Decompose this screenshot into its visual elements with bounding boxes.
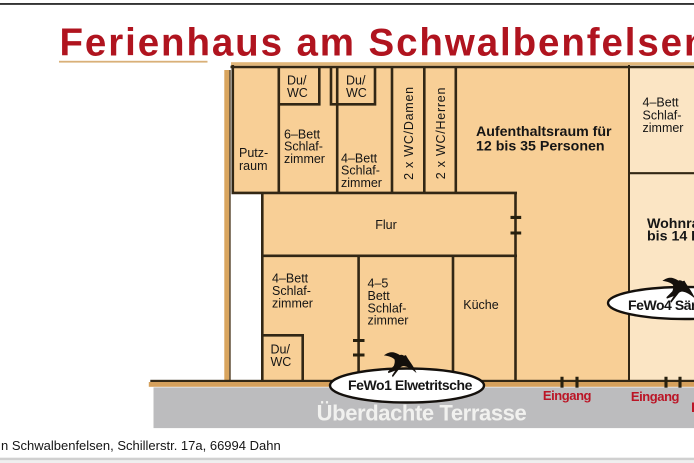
- svg-text:Du/WC: Du/WC: [346, 74, 367, 100]
- svg-text:Küche: Küche: [463, 298, 498, 312]
- svg-text:2 x WC/Herren: 2 x WC/Herren: [434, 87, 448, 179]
- svg-text:n Schwalbenfelsen, Schillerstr: n Schwalbenfelsen, Schillerstr. 17a, 669…: [1, 438, 281, 453]
- svg-text:Eingang: Eingang: [631, 389, 680, 404]
- svg-text:Flur: Flur: [375, 218, 397, 232]
- svg-text:Du/WC: Du/WC: [271, 343, 292, 370]
- svg-text:FeWo4 Sängerfelsen: FeWo4 Sängerfelsen: [628, 297, 694, 313]
- svg-text:Aufenthaltsraum für12 bis 35 P: Aufenthaltsraum für12 bis 35 Personen: [476, 124, 612, 154]
- svg-text:4–BettSchlaf-zimmer: 4–BettSchlaf-zimmer: [341, 151, 382, 190]
- svg-text:Putz-raum: Putz-raum: [239, 146, 268, 173]
- svg-text:2 x WC/Damen: 2 x WC/Damen: [402, 86, 416, 180]
- svg-text:4–BettSchlaf-zimmer: 4–BettSchlaf-zimmer: [272, 272, 313, 311]
- svg-text:Du/WC: Du/WC: [287, 74, 308, 100]
- svg-text:Eingang: Eingang: [543, 388, 592, 403]
- svg-text:6–BettSchlaf-zimmer: 6–BettSchlaf-zimmer: [284, 127, 325, 166]
- svg-text:4–BettSchlaf-zimmer: 4–BettSchlaf-zimmer: [643, 96, 684, 135]
- svg-text:Ferienhaus am Schwalbenfelsen: Ferienhaus am Schwalbenfelsen: [60, 21, 694, 64]
- svg-text:Wohnraumbis 14 Pers.: Wohnraumbis 14 Pers.: [647, 216, 694, 245]
- svg-text:Überdachte Terrasse: Überdachte Terrasse: [317, 400, 527, 425]
- svg-text:FeWo1 Elwetritsche: FeWo1 Elwetritsche: [348, 377, 473, 393]
